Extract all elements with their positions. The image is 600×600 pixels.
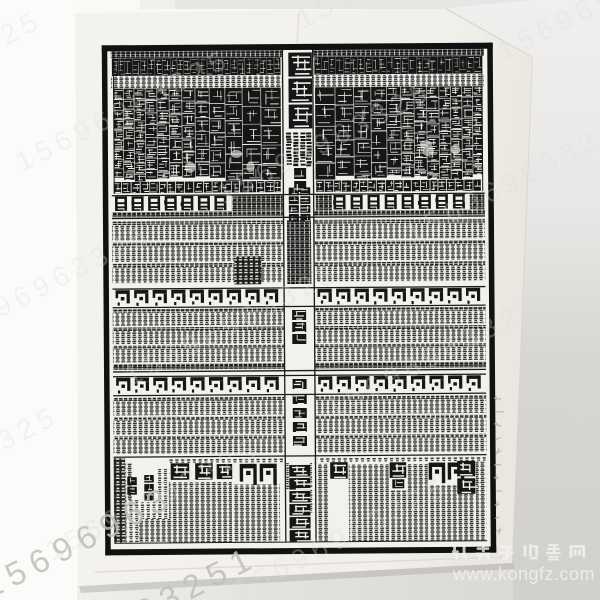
svg-text:www.kongfz.com: www.kongfz.com [452,564,595,584]
